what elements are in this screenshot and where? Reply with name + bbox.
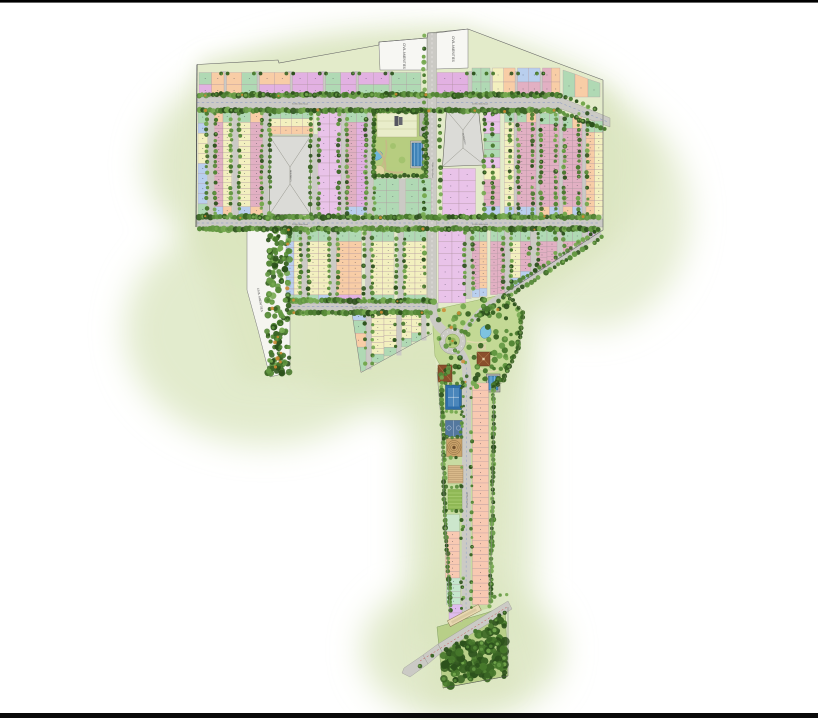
svg-text:CIVIL AMENITIES: CIVIL AMENITIES bbox=[451, 36, 455, 62]
svg-text:CIVIL AMENITIES: CIVIL AMENITIES bbox=[402, 43, 406, 69]
svg-text:24 Mtr. Wide Road: 24 Mtr. Wide Road bbox=[431, 162, 434, 178]
svg-text:30 Mtr. Wide Road: 30 Mtr. Wide Road bbox=[292, 223, 308, 226]
svg-text:30 Mtr. Wide Road: 30 Mtr. Wide Road bbox=[472, 103, 488, 106]
svg-text:24 Mtr. Wide Road: 24 Mtr. Wide Road bbox=[352, 307, 368, 310]
svg-text:RESIDENCY: RESIDENCY bbox=[289, 170, 291, 182]
svg-text:24 Mtr. Wide Road: 24 Mtr. Wide Road bbox=[466, 492, 469, 508]
svg-text:30 Mtr. Wide Road: 30 Mtr. Wide Road bbox=[292, 103, 308, 106]
svg-text:30 Mtr. Wide Road: 30 Mtr. Wide Road bbox=[472, 223, 488, 226]
